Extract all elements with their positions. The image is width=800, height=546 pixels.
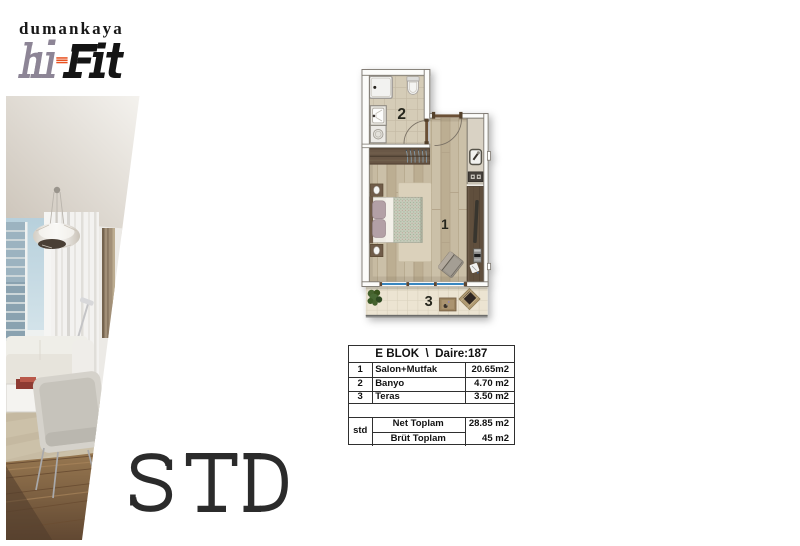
svg-text:2: 2 xyxy=(397,106,406,123)
svg-text:1: 1 xyxy=(441,217,449,232)
svg-text:3: 3 xyxy=(425,294,433,310)
